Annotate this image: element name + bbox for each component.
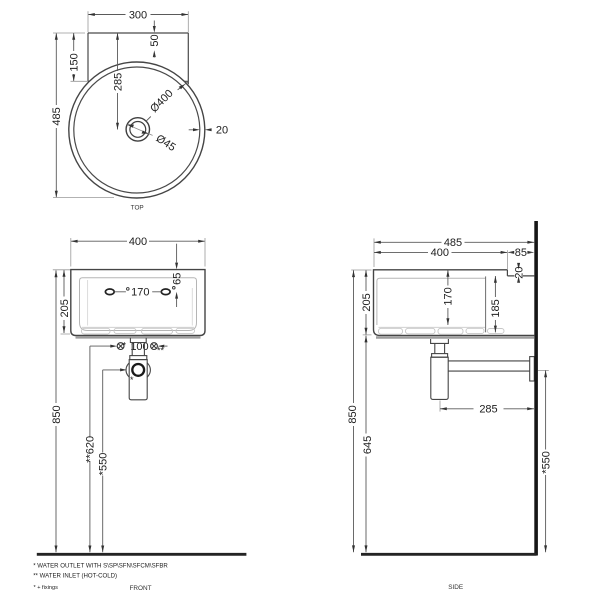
svg-text:*550: *550 (540, 451, 552, 474)
svg-text:205: 205 (59, 299, 71, 317)
svg-text:**620: **620 (85, 436, 97, 463)
svg-text:*550: *550 (98, 453, 110, 476)
svg-text:485: 485 (51, 107, 63, 125)
svg-text:SIDE: SIDE (448, 584, 463, 591)
svg-text:85: 85 (515, 247, 527, 259)
svg-text:65: 65 (171, 273, 183, 285)
svg-text:205: 205 (361, 293, 373, 311)
svg-text:285: 285 (112, 73, 124, 91)
svg-text:170: 170 (131, 287, 149, 299)
svg-text:**: ** (157, 345, 165, 355)
svg-text:50: 50 (149, 34, 161, 46)
svg-text:* + fixings: * + fixings (34, 585, 59, 591)
svg-text:285: 285 (479, 404, 497, 416)
svg-text:185: 185 (490, 299, 502, 317)
svg-text:400: 400 (431, 247, 449, 259)
svg-text:** WATER INLET (HOT-COLD): ** WATER INLET (HOT-COLD) (33, 573, 117, 580)
svg-text:20: 20 (513, 266, 525, 278)
svg-text:850: 850 (51, 405, 63, 423)
svg-text:*: * (123, 340, 127, 350)
svg-text:300: 300 (129, 9, 147, 21)
svg-text:FRONT: FRONT (129, 585, 151, 592)
svg-text:150: 150 (69, 53, 81, 71)
svg-text:645: 645 (362, 436, 374, 454)
svg-text:400: 400 (129, 236, 147, 248)
svg-text:20: 20 (216, 125, 228, 137)
svg-text:850: 850 (347, 405, 359, 423)
svg-text:* WATER OUTLET WITH S\SP\SFN\: * WATER OUTLET WITH S\SP\SFN\SFCM\SFBR (33, 562, 168, 569)
svg-text:TOP: TOP (131, 205, 144, 212)
svg-text:170: 170 (443, 287, 455, 305)
svg-text:*: * (130, 375, 134, 385)
